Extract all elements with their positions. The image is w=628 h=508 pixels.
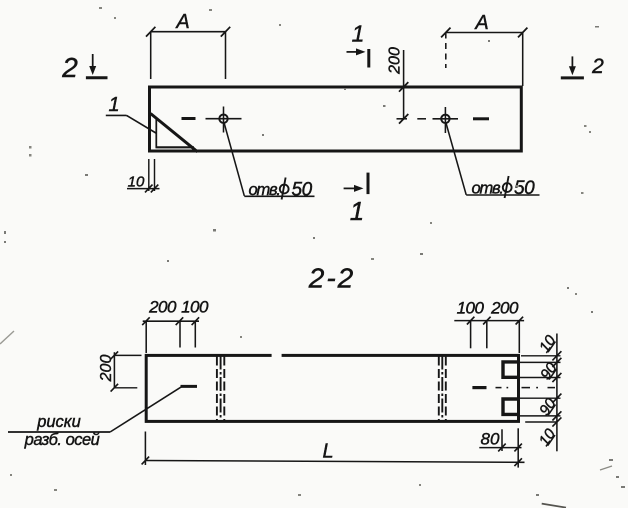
svg-text:50: 50 xyxy=(514,178,535,199)
svg-text:разб. осей: разб. осей xyxy=(24,431,100,449)
svg-text:100: 100 xyxy=(181,298,209,317)
svg-text:200: 200 xyxy=(98,355,115,383)
svg-text:отв.: отв. xyxy=(472,180,503,198)
svg-text:1: 1 xyxy=(108,94,119,116)
svg-text:200: 200 xyxy=(490,299,519,318)
svg-text:1: 1 xyxy=(352,21,365,47)
svg-text:1: 1 xyxy=(350,196,364,226)
svg-text:2: 2 xyxy=(591,55,604,78)
svg-text:2-2: 2-2 xyxy=(308,263,355,294)
svg-text:2: 2 xyxy=(61,52,78,83)
svg-text:A: A xyxy=(175,11,189,33)
svg-text:L: L xyxy=(322,441,333,463)
svg-text:риски: риски xyxy=(36,413,81,431)
svg-text:50: 50 xyxy=(292,180,313,201)
svg-text:80: 80 xyxy=(481,430,500,449)
svg-text:200: 200 xyxy=(148,298,177,317)
svg-text:200: 200 xyxy=(387,47,404,75)
svg-text:отв.: отв. xyxy=(249,181,280,199)
svg-text:A: A xyxy=(474,12,488,34)
svg-text:100: 100 xyxy=(457,299,485,318)
svg-text:10: 10 xyxy=(128,174,145,191)
